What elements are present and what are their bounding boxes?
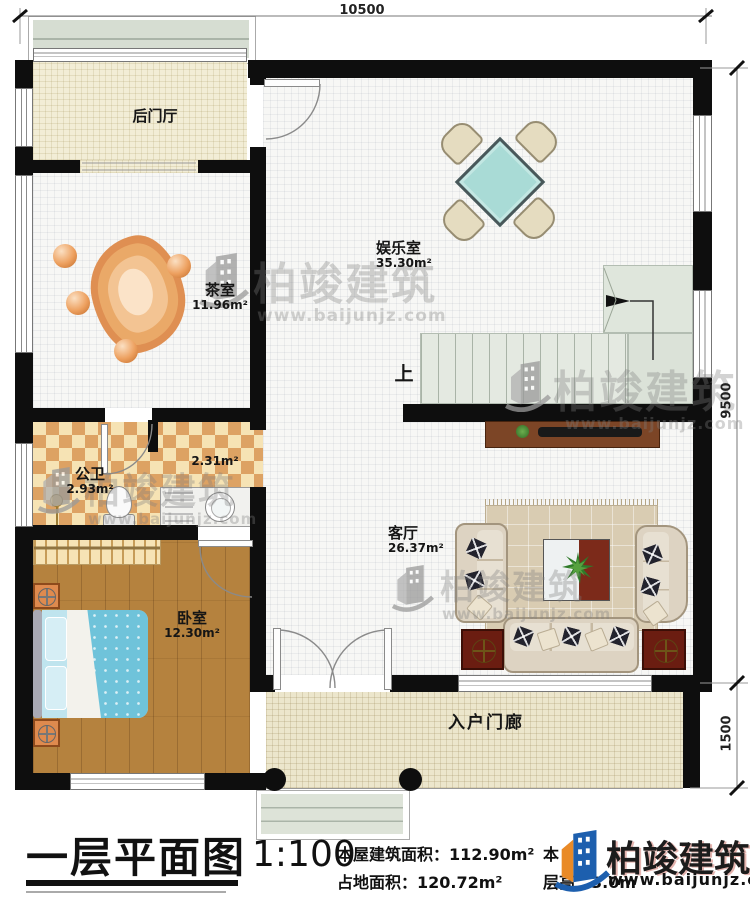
wall [390, 675, 458, 692]
towel-rack [165, 492, 193, 522]
cabinet-plant [516, 425, 529, 438]
title-underline-thin [26, 891, 226, 893]
window [70, 773, 205, 790]
wall [15, 353, 33, 443]
sink-inner [211, 498, 231, 518]
wall [693, 212, 712, 290]
pillow [45, 666, 67, 710]
stair-landing [628, 333, 693, 404]
wall [248, 60, 712, 78]
nightstand [33, 583, 60, 609]
wall [250, 487, 266, 692]
wall [198, 160, 266, 173]
wall [205, 773, 266, 790]
wall [250, 675, 275, 692]
entry-steps [261, 794, 403, 834]
bed-headboard [33, 610, 42, 718]
porch-column [399, 768, 422, 791]
wall [693, 378, 712, 692]
door-leaf [384, 628, 392, 690]
side-table [642, 629, 686, 670]
room-label-gameroom: 娱乐室 35.30m² [376, 240, 446, 271]
door-leaf [273, 628, 281, 690]
wall [33, 408, 105, 422]
drain-stem [56, 507, 58, 527]
door-leaf [198, 540, 253, 547]
room-label-bathroom: 公卫 2.93m² [60, 466, 120, 497]
page-title: 一层平面图 [26, 824, 246, 885]
dimension-right-porch: 1500 [720, 704, 735, 764]
brand-url: www.baijunjz.com [608, 870, 750, 889]
wall [15, 773, 70, 790]
tv [538, 427, 642, 437]
dimension-top: 10500 [330, 3, 394, 18]
room-label-bedroom: 卧室 12.30m² [160, 610, 224, 641]
window [693, 290, 712, 378]
wall [148, 420, 158, 452]
wall [152, 408, 266, 422]
room-label-living: 客厅 26.37m² [388, 525, 452, 556]
tearoom-stone [53, 244, 77, 268]
lamp [38, 588, 56, 606]
window [15, 443, 33, 527]
room-label-bath-alcove: 2.31m² [185, 455, 245, 469]
porch-column [263, 768, 286, 791]
title-underline [26, 880, 238, 886]
dimension-right-main: 9500 [720, 371, 735, 431]
side-table [461, 629, 504, 670]
room-label-porch: 入户门廊 [448, 714, 568, 734]
medallion [654, 639, 678, 663]
wall [33, 160, 80, 173]
window [458, 675, 652, 692]
bed [42, 610, 148, 718]
window [15, 88, 33, 147]
table-plant-icon [560, 550, 596, 586]
wall [33, 525, 198, 540]
stairs-up-label: 上 [392, 364, 416, 386]
floor-plan-canvas: 柏竣建筑 www.baijunjz.com 柏竣建筑 www.baijunjz.… [0, 0, 750, 900]
window [33, 48, 247, 62]
wall [403, 404, 712, 422]
stair-upper-flight [603, 265, 693, 333]
wall [693, 60, 712, 115]
backhall-opening-floor [80, 160, 198, 173]
window [15, 175, 33, 353]
land-area-text: 占地面积：120.72m² [337, 869, 502, 893]
porch-floor [266, 692, 683, 789]
wall [652, 675, 712, 692]
tearoom-rug-core [114, 266, 157, 319]
window [693, 115, 712, 212]
room-label-tearoom: 茶室 11.96m² [185, 282, 255, 313]
tearoom-stone [167, 254, 191, 278]
room-label-backhall: 后门厅 [120, 108, 190, 125]
wall [15, 147, 33, 175]
wall [15, 60, 33, 88]
wall [15, 527, 33, 790]
stair-run [420, 333, 628, 404]
lamp [38, 725, 56, 743]
brand-logo-icon [552, 826, 610, 892]
sink-basin [205, 492, 235, 522]
tearoom-rug-layer [101, 251, 174, 337]
door-leaf [264, 79, 320, 87]
tearoom-stone [114, 339, 138, 363]
wall [683, 692, 700, 788]
medallion [472, 639, 496, 663]
building-area-text: 本屋建筑面积：112.90m² [337, 841, 534, 865]
tearoom-stone [66, 291, 90, 315]
pillow [45, 617, 67, 661]
nightstand [33, 719, 60, 747]
